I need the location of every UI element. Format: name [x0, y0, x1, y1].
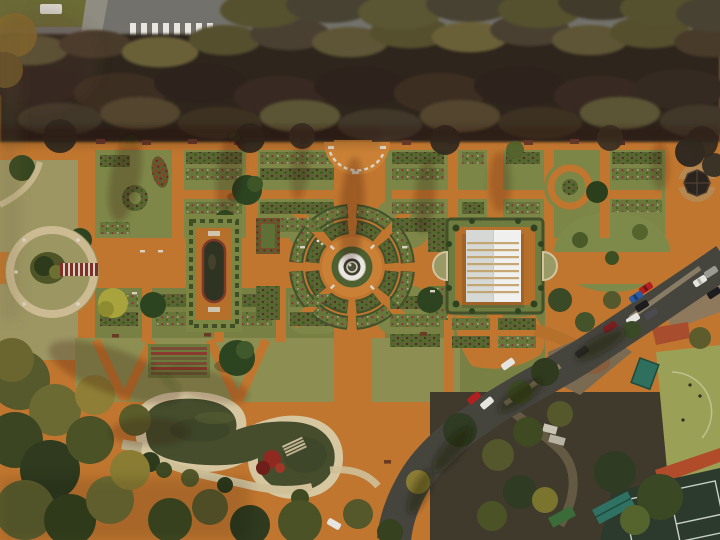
red-trellis-walk [60, 263, 98, 276]
scene-svg: Aerial top-down drone photograph of a la… [0, 0, 720, 540]
pool-water [203, 240, 225, 302]
white-pavilion [433, 218, 557, 314]
reflecting-pool [186, 215, 242, 332]
aerial-photo-garden: Aerial top-down drone photograph of a la… [0, 0, 720, 540]
